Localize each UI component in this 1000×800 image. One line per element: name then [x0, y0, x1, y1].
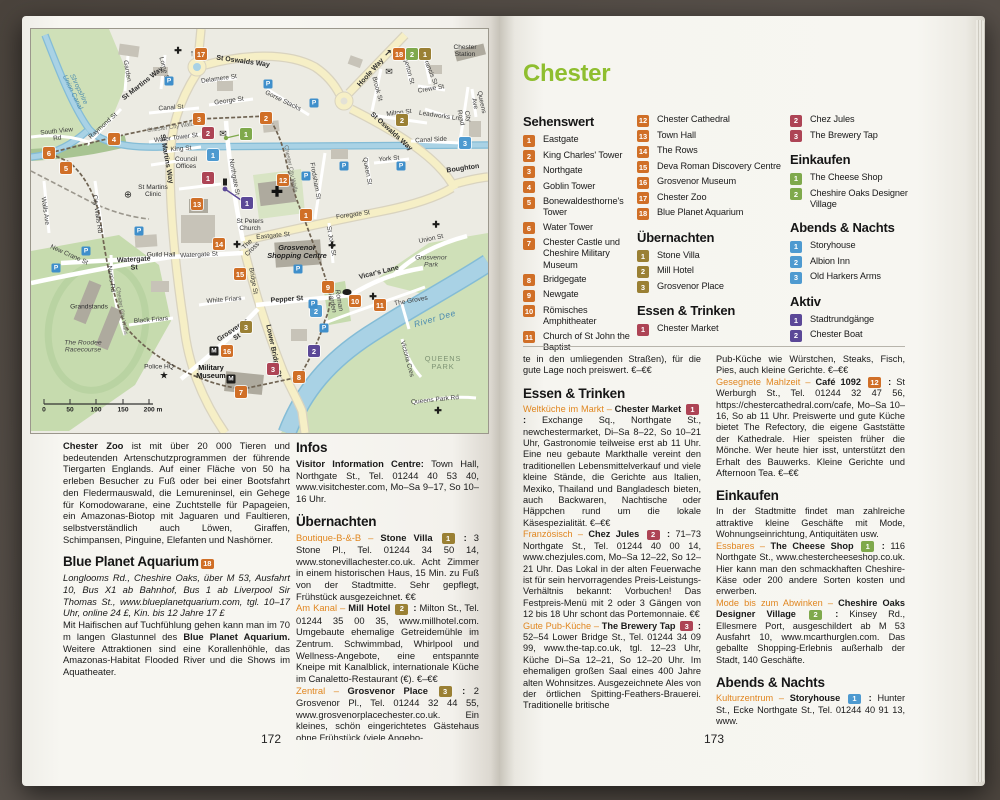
paragraph: te in den umliegenden Straßen), für die …	[523, 354, 701, 377]
legend-item: 1Storyhouse	[790, 240, 915, 253]
right-body-column-2: Pub-Küche wie Würstchen, Steaks, Fisch, …	[716, 354, 905, 727]
legend-item: 18Blue Planet Aquarium	[637, 207, 790, 220]
page-number-right: 173	[523, 732, 905, 746]
legend-item-label: King Charles' Tower	[543, 150, 622, 163]
legend-column: 12Chester Cathedral13Town Hall14The Rows…	[637, 114, 790, 339]
legend-item: 11Church of St John the Baptist	[523, 331, 637, 354]
section-heading: Essen & Trinken	[523, 386, 701, 401]
legend-item: 3Old Harkers Arms	[790, 271, 915, 284]
legend-item-label: The Cheese Shop	[810, 172, 883, 185]
left-body-column-1: Chester Zoo ist mit über 20 000 Tieren u…	[63, 440, 290, 678]
legend-item: 14The Rows	[637, 145, 790, 158]
map-ref-badge: 2	[790, 256, 802, 268]
book-photo: Shropshire Union CanalSt Martins WaySt M…	[0, 0, 1000, 800]
legend-item-label: Deva Roman Discovery Centre	[657, 161, 781, 174]
map-ref-badge: 3	[439, 686, 452, 697]
map-ref-badge: 2	[790, 330, 802, 342]
legend-item: 8Bridgegate	[523, 274, 637, 287]
legend-item-label: Cheshire Oaks Designer Village	[810, 188, 915, 211]
legend-item: 2Albion Inn	[790, 256, 915, 269]
legend-item-label: Chester Castle und Cheshire Military Mus…	[543, 237, 637, 271]
map-base-art	[31, 29, 488, 433]
guidebook-spread: Shropshire Union CanalSt Martins WaySt M…	[22, 16, 985, 786]
right-body-column-1: te in den umliegenden Straßen), für die …	[523, 354, 701, 712]
map-ref-badge: 3	[790, 130, 802, 142]
map-ref-badge: 1	[523, 135, 535, 147]
map-ref-badge: 10	[523, 305, 535, 317]
paragraph: In der Stadtmitte findet man zahlreiche …	[716, 506, 905, 540]
legend-item-label: Stone Villa	[657, 250, 700, 263]
map-ref-badge: 5	[523, 197, 535, 209]
chester-city-map: Shropshire Union CanalSt Martins WaySt M…	[30, 28, 489, 434]
map-ref-badge: 9	[523, 290, 535, 302]
map-ref-badge: 3	[523, 166, 535, 178]
right-page-body: te in den umliegenden Straßen), für die …	[523, 354, 905, 732]
map-ref-badge: 3	[680, 621, 693, 632]
map-ref-badge: 18	[201, 559, 214, 570]
legend-item: 13Town Hall	[637, 130, 790, 143]
legend-item: 1Chester Market	[637, 323, 790, 336]
map-ref-badge: 4	[523, 181, 535, 193]
map-ref-badge: 14	[637, 146, 649, 158]
map-ref-badge: 1	[790, 241, 802, 253]
paragraph: Mit Haifischen auf Tuchfühlung gehen kan…	[63, 619, 290, 678]
paragraph: Visitor Information Centre: Town Hall, N…	[296, 458, 479, 505]
paragraph: Kulturzentrum – Storyhouse 1 : Hunter St…	[716, 693, 905, 727]
legend-item: 2Cheshire Oaks Designer Village	[790, 188, 915, 211]
map-ref-badge: 3	[790, 272, 802, 284]
map-ref-badge: 1	[790, 314, 802, 326]
legend-item-label: Chester Zoo	[657, 192, 706, 205]
page-left: Shropshire Union CanalSt Martins WaySt M…	[22, 16, 500, 786]
legend-column: Sehenswert1Eastgate2King Charles' Tower3…	[523, 114, 637, 356]
map-ref-badge: 3	[637, 281, 649, 293]
legend-item: 9Newgate	[523, 289, 637, 302]
legend-item-label: Bonewaldesthorne's Tower	[543, 196, 637, 219]
legend-item-label: Grosvenor Museum	[657, 176, 736, 189]
paragraph: Boutique-B-&-B – Stone Villa 1 : 3 Stone…	[296, 532, 479, 603]
legend-item: 7Chester Castle und Cheshire Military Mu…	[523, 237, 637, 271]
section-heading: Blue Planet Aquarium18	[63, 554, 290, 569]
map-ref-badge: 1	[848, 694, 861, 705]
map-ref-badge: 18	[637, 208, 649, 220]
legend-item-label: The Brewery Tap	[810, 130, 878, 143]
map-ref-badge: 1	[637, 324, 649, 336]
map-ref-badge: 1	[442, 533, 455, 544]
paragraph: Pub-Küche wie Würstchen, Steaks, Fisch, …	[716, 354, 905, 377]
left-body-column-2: InfosVisitor Information Centre: Town Ha…	[296, 440, 479, 740]
legend-item: 2Chester Boat	[790, 329, 915, 342]
legend-item: 1Eastgate	[523, 134, 637, 147]
legend-item: 2Mill Hotel	[637, 265, 790, 278]
paragraph: Mode bis zum Abwinken – Cheshire Oaks De…	[716, 598, 905, 666]
section-heading: Infos	[296, 440, 479, 455]
legend-item-label: Chester Market	[657, 323, 718, 336]
legend-item: 2King Charles' Tower	[523, 150, 637, 163]
legend-item: 12Chester Cathedral	[637, 114, 790, 127]
paragraph: Longlooms Rd., Cheshire Oaks, über M 53,…	[63, 572, 290, 619]
map-ref-badge: 13	[637, 130, 649, 142]
legend-item: 17Chester Zoo	[637, 192, 790, 205]
paragraph: Gesegnete Mahlzeit – Café 1092 12 : St W…	[716, 377, 905, 480]
map-ref-badge: 12	[637, 115, 649, 127]
legend-item-label: The Rows	[657, 145, 698, 158]
map-ref-badge: 1	[790, 173, 802, 185]
legend-item: 5Bonewaldesthorne's Tower	[523, 196, 637, 219]
legend-header: Übernachten	[637, 230, 790, 245]
paragraph: Am Kanal – Mill Hotel 2 : Milton St., Te…	[296, 602, 479, 684]
map-ref-badge: 2	[647, 530, 660, 541]
map-ref-badge: 12	[868, 377, 881, 388]
legend-item: 4Goblin Tower	[523, 181, 637, 194]
section-heading: Abends & Nachts	[716, 675, 905, 690]
map-ref-badge: 15	[637, 161, 649, 173]
map-ref-badge: 1	[686, 404, 699, 415]
legend-item-label: Water Tower	[543, 222, 593, 235]
map-ref-badge: 2	[523, 150, 535, 162]
section-divider	[523, 346, 905, 347]
legend-item-label: Newgate	[543, 289, 579, 302]
legend-item-label: Stadtrundgänge	[810, 314, 874, 327]
legend-header: Sehenswert	[523, 114, 637, 129]
legend-item: 1The Cheese Shop	[790, 172, 915, 185]
section-heading: Einkaufen	[716, 488, 905, 503]
legend-header: Aktiv	[790, 294, 915, 309]
page-title: Chester	[523, 60, 610, 88]
legend-item-label: Römisches Amphitheater	[543, 305, 637, 328]
map-ref-badge: 2	[790, 115, 802, 127]
legend-item-label: Chester Boat	[810, 329, 862, 342]
map-ref-badge: 2	[809, 610, 822, 621]
legend-item-label: Storyhouse	[810, 240, 855, 253]
section-heading: Übernachten	[296, 514, 479, 529]
legend-item: 3Northgate	[523, 165, 637, 178]
page-number-left: 172	[63, 732, 479, 746]
map-ref-badge: 1	[861, 541, 874, 552]
map-ref-badge: 2	[790, 188, 802, 200]
legend-item-label: Town Hall	[657, 130, 696, 143]
legend-header: Einkaufen	[790, 152, 915, 167]
page-right: Chester Sehenswert1Eastgate2King Charles…	[500, 16, 985, 786]
legend-item: 1Stadtrundgänge	[790, 314, 915, 327]
legend-item: 3The Brewery Tap	[790, 130, 915, 143]
legend-item-label: Goblin Tower	[543, 181, 595, 194]
legend-header: Essen & Trinken	[637, 303, 790, 318]
left-page-body: Chester Zoo ist mit über 20 000 Tieren u…	[63, 440, 479, 740]
legend-item-label: Chez Jules	[810, 114, 854, 127]
map-ref-badge: 8	[523, 274, 535, 286]
map-ref-badge: 6	[523, 222, 535, 234]
paragraph: Chester Zoo ist mit über 20 000 Tieren u…	[63, 440, 290, 545]
legend-item-label: Church of St John the Baptist	[543, 331, 637, 354]
paragraph: Französisch – Chez Jules 2 : 71–73 North…	[523, 529, 701, 620]
legend-item: 2Chez Jules	[790, 114, 915, 127]
legend-item-label: Albion Inn	[810, 256, 850, 269]
map-ref-badge: 7	[523, 238, 535, 250]
paragraph: Essbares – The Cheese Shop 1 : 116 North…	[716, 541, 905, 598]
paragraph: Gute Pub-Küche – The Brewery Tap 3 : 52–…	[523, 621, 701, 712]
map-ref-badge: 16	[637, 177, 649, 189]
legend-item: 10Römisches Amphitheater	[523, 305, 637, 328]
legend-item: 6Water Tower	[523, 222, 637, 235]
map-ref-badge: 2	[637, 266, 649, 278]
map-ref-badge: 17	[637, 192, 649, 204]
legend-item: 1Stone Villa	[637, 250, 790, 263]
legend-item-label: Eastgate	[543, 134, 578, 147]
legend-item: 3Grosvenor Place	[637, 281, 790, 294]
map-ref-badge: 1	[637, 250, 649, 262]
legend-item-label: Chester Cathedral	[657, 114, 730, 127]
legend-item-label: Mill Hotel	[657, 265, 694, 278]
legend-item-label: Northgate	[543, 165, 582, 178]
legend-item-label: Blue Planet Aquarium	[657, 207, 743, 220]
legend-column: 2Chez Jules3The Brewery TapEinkaufen1The…	[790, 114, 915, 345]
map-ref-badge: 11	[523, 331, 535, 343]
legend-item-label: Grosvenor Place	[657, 281, 724, 294]
legend-item: 15Deva Roman Discovery Centre	[637, 161, 790, 174]
map-ref-badge: 2	[395, 604, 408, 615]
legend-item-label: Bridgegate	[543, 274, 586, 287]
legend-header: Abends & Nachts	[790, 220, 915, 235]
paragraph: Weltküche im Markt – Chester Market 1 : …	[523, 404, 701, 529]
map-legend: Sehenswert1Eastgate2King Charles' Tower3…	[523, 114, 915, 356]
legend-item: 16Grosvenor Museum	[637, 176, 790, 189]
legend-item-label: Old Harkers Arms	[810, 271, 881, 284]
